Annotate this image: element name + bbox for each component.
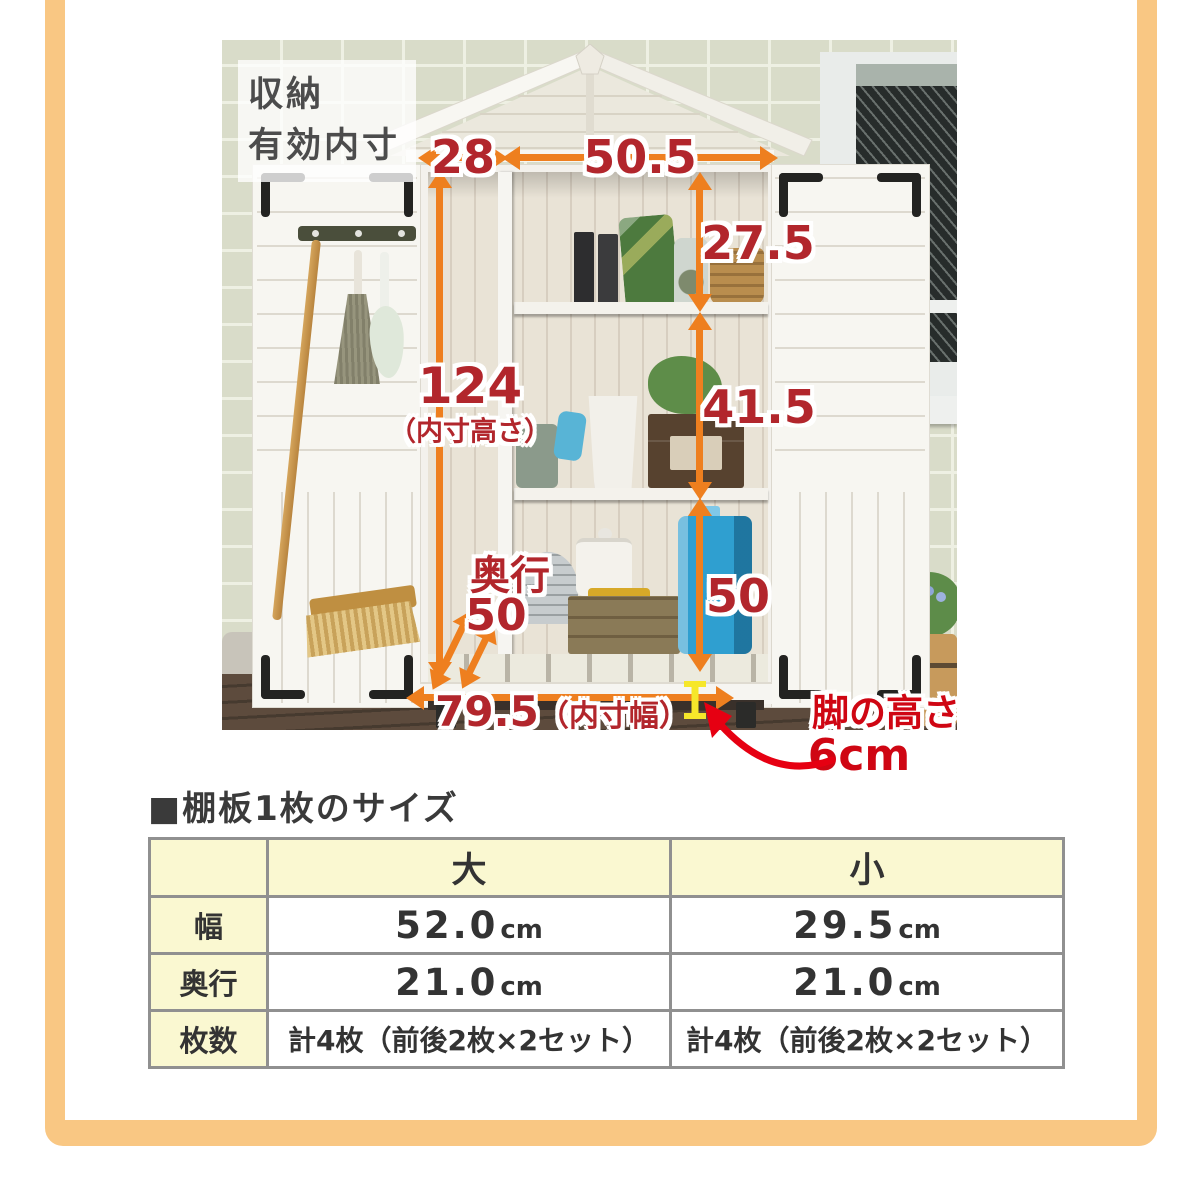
dim-total-height: 124 — [418, 361, 522, 411]
height-arrow-50 — [696, 514, 703, 656]
caption-line2: 有効内寸 — [248, 121, 406, 172]
header-corner-cell — [150, 839, 268, 897]
caption-line1: 収納 — [248, 70, 406, 121]
table-row-width: 幅 52.0cm 29.5cm — [150, 897, 1064, 954]
cell-depth-large: 21.0cm — [268, 954, 671, 1011]
unit: cm — [500, 915, 543, 945]
dim-top-height: 27.5 — [701, 220, 815, 266]
header-small-cell: 小 — [671, 839, 1064, 897]
cell-depth-small: 21.0cm — [671, 954, 1064, 1011]
dim-inner-width-note: （内寸幅） — [539, 699, 689, 734]
unit: cm — [898, 972, 941, 1002]
row-label-depth: 奥行 — [150, 954, 268, 1011]
page: 収納 有効内寸 28 50.5 27.5 124 （内寸高さ） 41.5 50 … — [0, 0, 1200, 1200]
dim-left-width: 28 — [431, 134, 495, 180]
cell-count-large: 計4枚（前後2枚×2セット） — [268, 1011, 671, 1068]
caption-box: 収納 有効内寸 — [238, 60, 416, 182]
unit: cm — [500, 972, 543, 1002]
table-row-depth: 奥行 21.0cm 21.0cm — [150, 954, 1064, 1011]
dim-right-width: 50.5 — [583, 134, 697, 180]
value: 21.0 — [793, 961, 896, 1004]
value: 計4枚（前後2枚×2セット） — [686, 1024, 1048, 1057]
shelf-size-table: 大 小 幅 52.0cm 29.5cm 奥行 21.0cm 21.0cm 枚数 … — [148, 837, 1065, 1069]
cell-width-large: 52.0cm — [268, 897, 671, 954]
dim-inner-width: 79.5（内寸幅） — [435, 691, 689, 733]
row-label-width: 幅 — [150, 897, 268, 954]
depth-arrow-small — [466, 636, 490, 675]
cell-width-small: 29.5cm — [671, 897, 1064, 954]
value: 29.5 — [793, 904, 896, 947]
section-title: ■棚板1枚のサイズ — [148, 781, 459, 830]
value: 計4枚（前後2枚×2セット） — [288, 1024, 650, 1057]
value: 52.0 — [395, 904, 498, 947]
product-photo: 収納 有効内寸 28 50.5 27.5 124 （内寸高さ） 41.5 50 … — [222, 40, 957, 730]
table-header-row: 大 小 — [150, 839, 1064, 897]
header-large-cell: 大 — [268, 839, 671, 897]
row-label-count: 枚数 — [150, 1011, 268, 1068]
dim-bottom-height: 50 — [706, 573, 770, 619]
dim-total-height-note: （内寸高さ） — [389, 419, 551, 446]
dim-middle-height: 41.5 — [702, 384, 816, 430]
curved-arrow-icon — [690, 700, 840, 776]
dimension-annotations: 収納 有効内寸 28 50.5 27.5 124 （内寸高さ） 41.5 50 … — [222, 40, 957, 730]
cell-count-small: 計4枚（前後2枚×2セット） — [671, 1011, 1064, 1068]
value: 21.0 — [395, 961, 498, 1004]
unit: cm — [898, 915, 941, 945]
dim-depth-value: 50 — [465, 594, 526, 638]
table-row-count: 枚数 計4枚（前後2枚×2セット） 計4枚（前後2枚×2セット） — [150, 1011, 1064, 1068]
dim-inner-width-num: 79.5 — [435, 687, 539, 736]
